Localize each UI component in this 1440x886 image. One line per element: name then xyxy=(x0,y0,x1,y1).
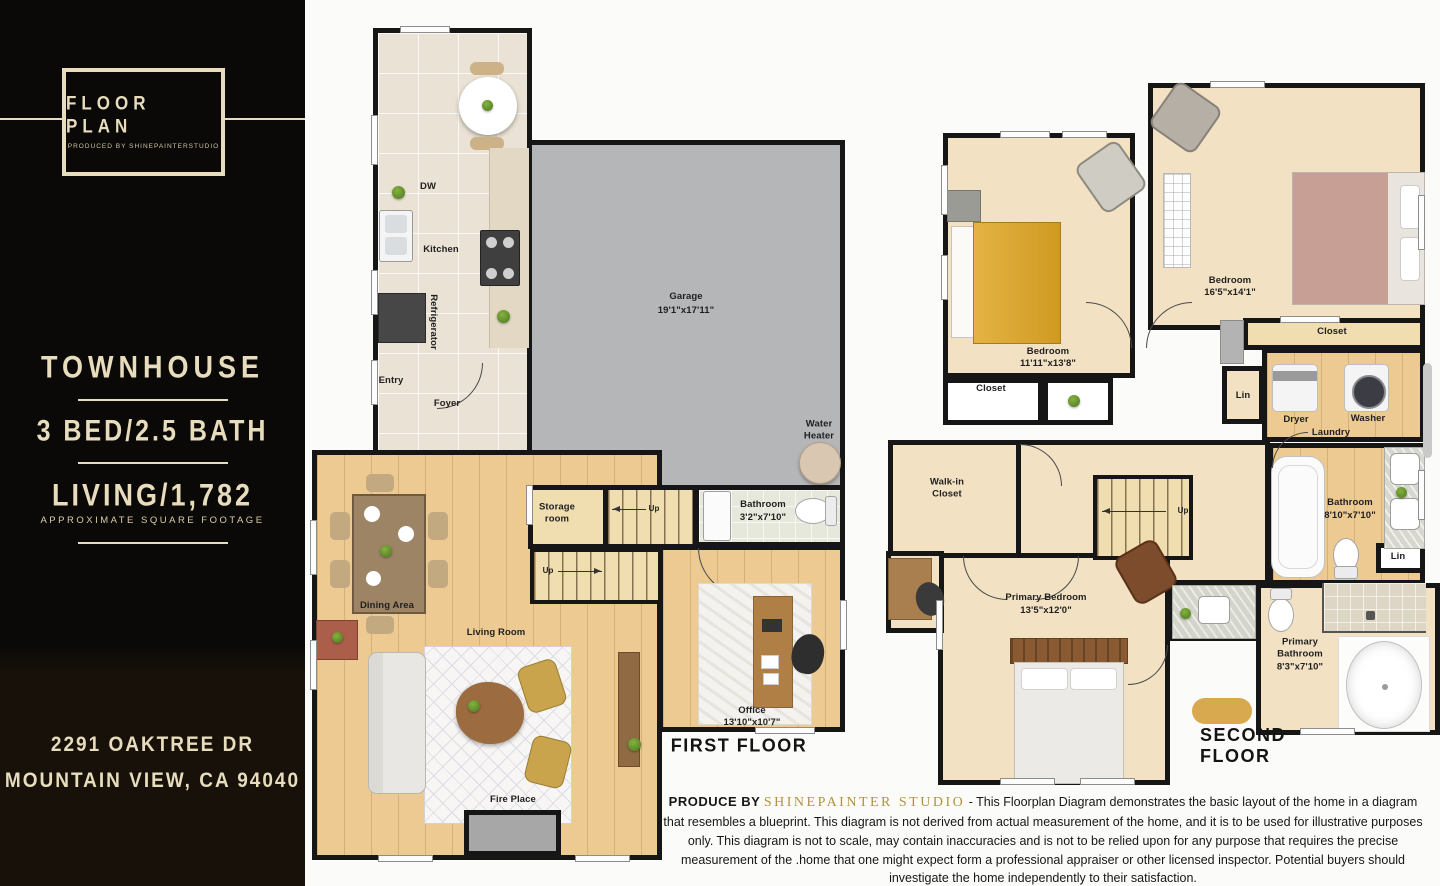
label-laundry: Laundry xyxy=(1312,427,1350,439)
window xyxy=(378,855,433,862)
nightstand xyxy=(947,190,981,222)
window xyxy=(1062,131,1107,138)
logo-rule-left xyxy=(0,118,62,120)
divider xyxy=(78,462,228,464)
dining-chair xyxy=(330,512,350,540)
logo: FLOOR PLAN PRODUCED BY SHINEPAINTERSTUDI… xyxy=(62,68,225,176)
label-up: Up xyxy=(1178,506,1189,516)
label-kitchen: Kitchen xyxy=(423,244,459,256)
tub-inner xyxy=(1278,465,1318,569)
label-entry: Entry xyxy=(379,375,404,387)
window xyxy=(936,600,943,650)
bed xyxy=(1292,172,1425,305)
dining-chair xyxy=(366,616,394,634)
tub-drain xyxy=(1382,684,1388,690)
stairs-upper xyxy=(603,485,698,549)
logo-title: FLOOR PLAN xyxy=(66,92,221,138)
scrollbar-thumb[interactable] xyxy=(1423,363,1432,458)
window xyxy=(371,270,378,315)
bed-yellow xyxy=(973,222,1061,344)
floorplan-page: FLOOR PLAN PRODUCED BY SHINEPAINTERSTUDI… xyxy=(0,0,1440,886)
up-arrow xyxy=(612,509,646,510)
label-foyer: Foyer xyxy=(434,398,460,410)
sink-bowl xyxy=(385,237,407,255)
window xyxy=(1418,470,1425,520)
dining-chair xyxy=(428,560,448,588)
property-type: TOWNHOUSE xyxy=(0,349,305,386)
label-closet-left: Closet xyxy=(976,383,1006,395)
washer-drum xyxy=(1352,375,1386,409)
label-lin-upper: Lin xyxy=(1236,390,1251,402)
plant-icon xyxy=(332,632,343,643)
produce-by-label: PRODUCE BY xyxy=(669,794,761,809)
window xyxy=(310,640,317,690)
burner xyxy=(486,237,497,248)
label-storage-room: Storage room xyxy=(539,502,575,527)
pillow xyxy=(1400,237,1420,281)
plate xyxy=(364,506,380,522)
window xyxy=(310,520,317,575)
bathroom-sink xyxy=(703,491,731,541)
office-desk xyxy=(753,596,793,708)
property-address: 2291 OAKTREE DR MOUNTAIN VIEW, CA 94040 xyxy=(0,727,305,800)
laptop xyxy=(762,619,782,632)
dryer-panel xyxy=(1273,371,1317,381)
studio-name: SHINEPAINTER STUDIO xyxy=(764,795,965,810)
sofa xyxy=(368,652,426,794)
refrigerator xyxy=(378,293,426,343)
coffee-table xyxy=(456,682,524,744)
bed-primary xyxy=(1014,662,1124,784)
window xyxy=(1280,316,1340,323)
burner xyxy=(486,268,497,279)
plant-icon xyxy=(628,738,641,751)
window xyxy=(1000,131,1050,138)
plate xyxy=(366,571,381,586)
label-bedroom-right-dim: 16'5"x14'1" xyxy=(1204,287,1256,299)
label-up: Up xyxy=(543,566,554,576)
soaking-tub xyxy=(1346,641,1422,729)
bathroom-sink xyxy=(1198,596,1230,624)
stool xyxy=(470,62,504,75)
bathroom-sink xyxy=(1390,498,1420,530)
plant-icon xyxy=(380,545,392,557)
divider xyxy=(78,399,228,401)
window xyxy=(1418,195,1425,250)
plate xyxy=(398,526,414,542)
label-bathroom2: Bathroom xyxy=(1327,497,1373,509)
plant-icon xyxy=(1068,395,1080,407)
toilet-tank xyxy=(825,496,837,526)
label-dining-area: Dining Area xyxy=(360,600,414,612)
label-primary-bedroom: Primary Bedroom xyxy=(1005,592,1086,604)
bed-pillows xyxy=(951,226,975,338)
address-line1: 2291 OAKTREE DR xyxy=(0,727,305,763)
address-line2: MOUNTAIN VIEW, CA 94040 xyxy=(0,763,305,799)
label-closet-right: Closet xyxy=(1317,326,1347,338)
logo-rule-right xyxy=(221,118,305,120)
dresser xyxy=(1163,173,1191,268)
living-sqft: LIVING/1,782 xyxy=(0,477,305,514)
label-office: Office xyxy=(738,705,766,717)
label-fire-place: Fire Place xyxy=(490,794,536,806)
bath-rug xyxy=(1192,698,1252,724)
window xyxy=(1210,81,1265,88)
window xyxy=(941,255,948,300)
shower-drain xyxy=(1366,611,1375,620)
sqft-note: APPROXIMATE SQUARE FOOTAGE xyxy=(0,515,305,526)
label-water-heater: Water Heater xyxy=(804,419,834,444)
label-bathroom-dim: 3'2"x7'10" xyxy=(740,512,786,524)
label-lin-lower: Lin xyxy=(1391,551,1406,563)
disclaimer: PRODUCE BY SHINEPAINTER STUDIO - This Fl… xyxy=(663,792,1423,886)
sofa-back xyxy=(369,653,383,793)
up-arrow xyxy=(558,571,602,572)
water-heater xyxy=(799,442,841,484)
label-up: Up xyxy=(649,504,660,514)
up-arrow xyxy=(1102,511,1166,512)
window xyxy=(840,600,847,650)
label-living-room: Living Room xyxy=(467,627,526,639)
label-bedroom-left-dim: 11'11"x13'8" xyxy=(1020,358,1076,370)
label-primary-bathroom: Primary Bathroom 8'3"x7'10" xyxy=(1277,636,1323,673)
cabinet xyxy=(1220,320,1244,364)
label-refrigerator: Refrigerator xyxy=(427,294,439,350)
label-bedroom-right: Bedroom xyxy=(1209,275,1251,287)
property-specs: TOWNHOUSE 3 BED/2.5 BATH LIVING/1,782 AP… xyxy=(0,352,305,560)
window xyxy=(371,360,378,405)
dryer xyxy=(1272,364,1318,412)
plant-icon xyxy=(1180,608,1191,619)
label-office-dim: 13'10"x10'7" xyxy=(724,717,781,729)
label-primary-bedroom-dim: 13'5"x12'0" xyxy=(1020,605,1072,617)
plant-icon xyxy=(497,310,510,323)
bed-blanket xyxy=(1293,173,1388,304)
bathroom-sink xyxy=(1390,453,1420,485)
label-walk-in-closet: Walk-in Closet xyxy=(930,477,964,502)
label-dw: DW xyxy=(420,181,436,193)
label-washer: Washer xyxy=(1351,413,1386,425)
dining-chair xyxy=(366,474,394,492)
burner xyxy=(503,268,514,279)
label-bedroom-left: Bedroom xyxy=(1027,346,1069,358)
label-bathroom2-dim: 8'10"x7'10" xyxy=(1324,510,1376,522)
sidebar: FLOOR PLAN PRODUCED BY SHINEPAINTERSTUDI… xyxy=(0,0,305,886)
toilet xyxy=(1268,598,1294,632)
window xyxy=(941,165,948,215)
label-bathroom: Bathroom xyxy=(740,499,786,511)
label-garage: Garage xyxy=(669,291,702,303)
window xyxy=(575,855,630,862)
window xyxy=(400,26,450,33)
shower xyxy=(1322,583,1426,633)
window xyxy=(526,485,533,525)
toilet-tank xyxy=(1334,566,1358,579)
window xyxy=(1000,778,1055,785)
headboard xyxy=(1010,638,1128,664)
kitchen-sink xyxy=(379,210,413,262)
pillow xyxy=(1400,185,1420,229)
window xyxy=(1080,778,1135,785)
toilet-tank xyxy=(1270,588,1292,600)
dining-chair xyxy=(330,560,350,588)
plant-icon xyxy=(392,186,405,199)
washer xyxy=(1344,364,1389,412)
papers xyxy=(763,673,779,685)
first-floor-title: FIRST FLOOR xyxy=(671,736,808,757)
sink-bowl xyxy=(385,215,407,233)
bathtub xyxy=(1271,456,1325,578)
beds-baths: 3 BED/2.5 BATH xyxy=(0,414,305,448)
label-dryer: Dryer xyxy=(1283,414,1308,426)
dining-chair xyxy=(428,512,448,540)
divider xyxy=(78,542,228,544)
pillow xyxy=(1021,668,1068,690)
burner xyxy=(503,237,514,248)
window xyxy=(371,115,378,165)
plant-icon xyxy=(482,100,493,111)
label-garage-dim: 19'1"x17'11" xyxy=(658,305,714,317)
plant-icon xyxy=(468,700,480,712)
second-floor-title: SECOND FLOOR xyxy=(1200,725,1360,767)
stove xyxy=(480,230,520,286)
fireplace xyxy=(464,810,561,856)
plant-icon xyxy=(1396,487,1407,498)
pillow xyxy=(1070,668,1117,690)
logo-subtitle: PRODUCED BY SHINEPAINTERSTUDIO xyxy=(68,143,219,150)
papers xyxy=(761,655,779,669)
